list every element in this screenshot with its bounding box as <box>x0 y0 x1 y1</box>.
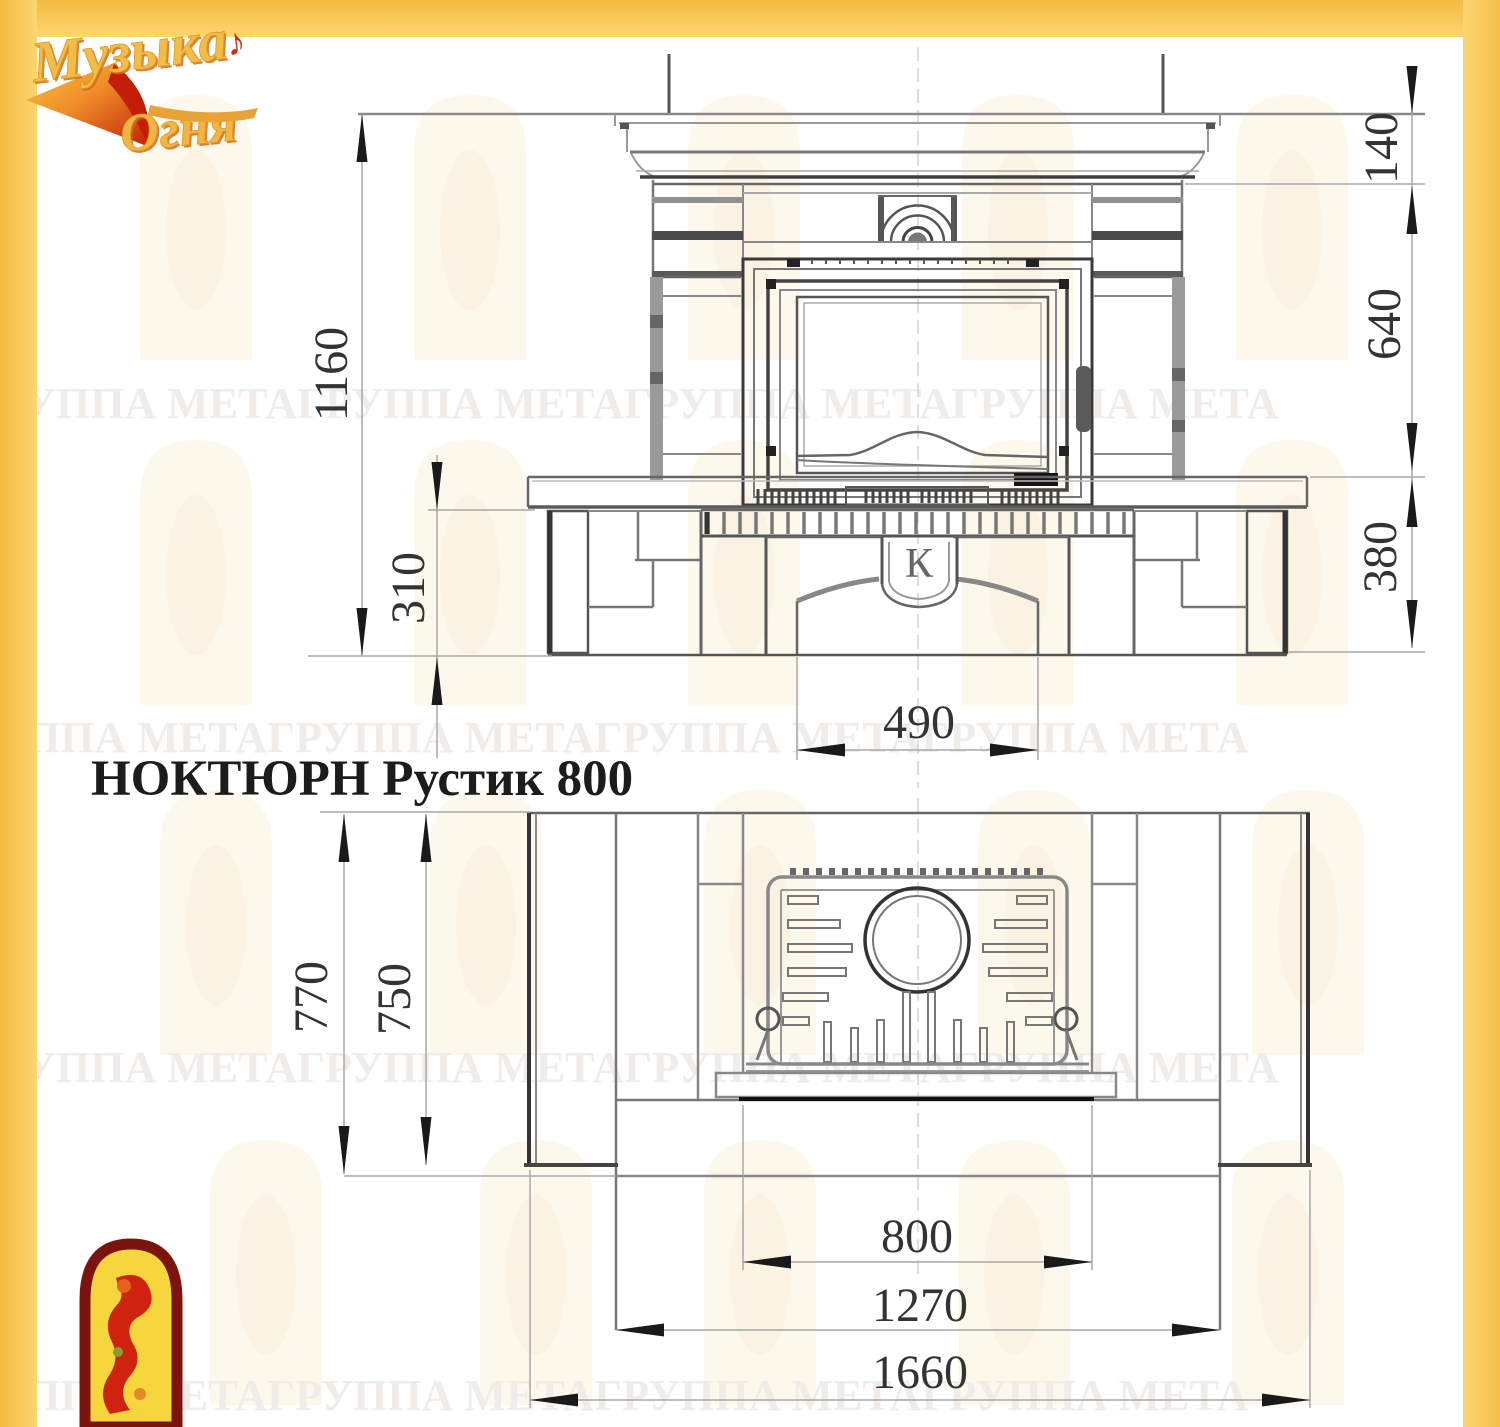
svg-text:140: 140 <box>1355 112 1408 184</box>
svg-text:490: 490 <box>883 696 955 749</box>
svg-text:ГРУППА МЕТАГРУППА МЕТАГРУППА М: ГРУППА МЕТАГРУППА МЕТАГРУППА МЕТАГРУППА … <box>0 1043 1279 1092</box>
svg-text:640: 640 <box>1358 288 1411 360</box>
svg-text:1660: 1660 <box>872 1346 968 1399</box>
svg-text:НОКТЮРН Рустик 800: НОКТЮРН Рустик 800 <box>91 751 633 807</box>
svg-text:380: 380 <box>1354 521 1407 593</box>
svg-text:770: 770 <box>285 961 338 1033</box>
svg-text:800: 800 <box>881 1210 953 1263</box>
svg-text:К: К <box>905 541 934 587</box>
svg-text:ГРУППА МЕТАГРУППА МЕТАГРУППА М: ГРУППА МЕТАГРУППА МЕТАГРУППА МЕТАГРУППА … <box>0 1371 1249 1420</box>
svg-text:1160: 1160 <box>305 327 358 421</box>
svg-text:310: 310 <box>382 552 435 624</box>
svg-text:750: 750 <box>368 963 421 1035</box>
svg-text:Огня: Огня <box>117 92 239 164</box>
svg-text:1270: 1270 <box>872 1279 968 1332</box>
